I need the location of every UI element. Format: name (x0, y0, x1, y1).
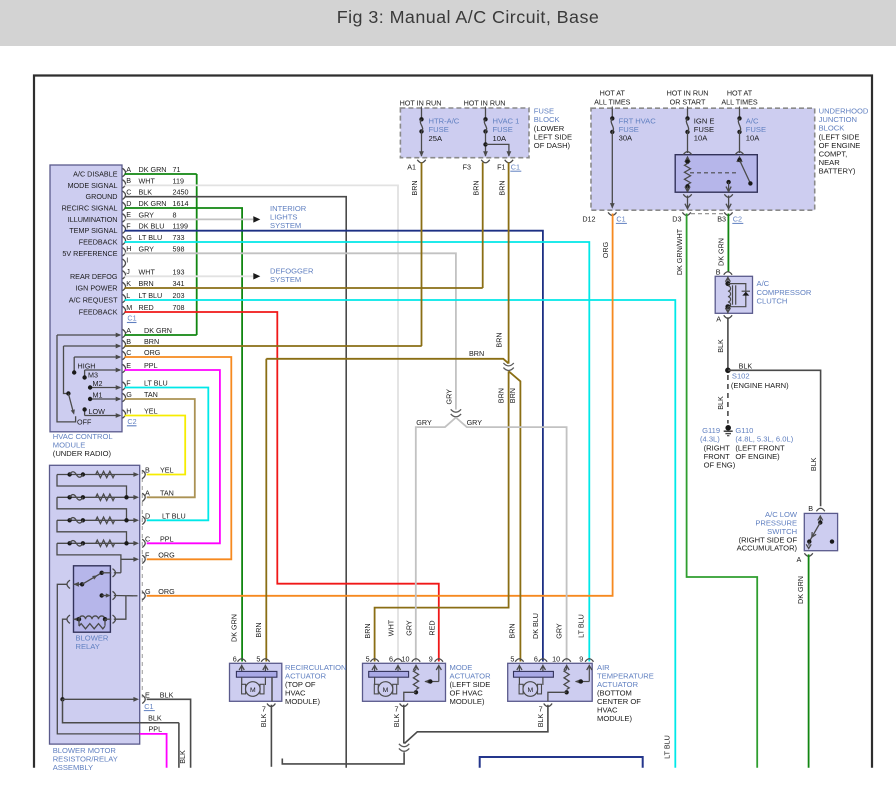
svg-text:1199: 1199 (173, 222, 188, 231)
svg-text:341: 341 (173, 279, 185, 288)
svg-text:BRN: BRN (410, 180, 419, 195)
svg-text:708: 708 (173, 303, 185, 312)
svg-text:119: 119 (173, 176, 184, 185)
svg-text:DK GRN: DK GRN (796, 576, 805, 604)
svg-text:HOT AT: HOT AT (727, 89, 753, 98)
svg-text:193: 193 (173, 267, 185, 276)
svg-text:10A: 10A (746, 134, 760, 143)
svg-text:ASSEMBLY: ASSEMBLY (53, 763, 93, 772)
svg-text:LT BLU: LT BLU (162, 511, 186, 520)
svg-text:GRY: GRY (404, 620, 413, 636)
svg-text:BLK: BLK (716, 339, 725, 353)
svg-text:BRN: BRN (469, 349, 484, 358)
svg-text:DK GRN: DK GRN (139, 199, 167, 208)
svg-text:ALL TIMES: ALL TIMES (721, 98, 758, 107)
svg-text:GRY: GRY (139, 244, 155, 253)
svg-text:71: 71 (173, 165, 181, 174)
svg-text:PPL: PPL (149, 725, 163, 734)
svg-text:MODULE): MODULE) (597, 714, 632, 723)
svg-text:D3: D3 (672, 215, 681, 224)
svg-text:LT BLU: LT BLU (144, 379, 168, 388)
svg-text:BRN: BRN (496, 388, 505, 403)
svg-text:30A: 30A (619, 134, 633, 143)
svg-text:LT BLU: LT BLU (139, 291, 163, 300)
svg-text:MODULE): MODULE) (285, 697, 320, 706)
svg-text:6: 6 (233, 655, 237, 664)
svg-text:LT BLU: LT BLU (577, 614, 586, 638)
svg-text:10A: 10A (493, 134, 507, 143)
svg-text:D: D (126, 199, 131, 208)
svg-text:9: 9 (429, 655, 433, 664)
svg-text:GRY: GRY (555, 623, 564, 639)
svg-text:RECIRC SIGNAL: RECIRC SIGNAL (62, 204, 118, 213)
svg-text:DK GRN: DK GRN (229, 614, 238, 642)
svg-text:DK GRN: DK GRN (144, 326, 172, 335)
svg-text:10: 10 (552, 655, 560, 664)
svg-text:6: 6 (389, 655, 393, 664)
svg-text:SYSTEM: SYSTEM (270, 275, 301, 284)
svg-text:5V REFERENCE: 5V REFERENCE (62, 249, 117, 258)
svg-text:MODULE): MODULE) (450, 697, 485, 706)
svg-text:598: 598 (173, 244, 185, 253)
svg-text:B: B (126, 337, 131, 346)
svg-text:WHT: WHT (386, 619, 395, 636)
svg-text:7: 7 (539, 704, 543, 713)
svg-text:ALL TIMES: ALL TIMES (594, 98, 631, 107)
svg-text:BRN: BRN (471, 180, 480, 195)
svg-text:BRN: BRN (508, 623, 517, 638)
svg-text:GRY: GRY (444, 389, 453, 405)
svg-text:GROUND: GROUND (86, 192, 118, 201)
svg-text:BLK: BLK (809, 457, 818, 471)
svg-text:M: M (126, 303, 132, 312)
svg-text:B: B (716, 267, 721, 276)
svg-text:OR START: OR START (670, 98, 706, 107)
svg-text:BRN: BRN (144, 337, 159, 346)
svg-text:5: 5 (256, 655, 260, 664)
svg-text:BLK: BLK (392, 714, 401, 728)
svg-text:ORG: ORG (601, 241, 610, 258)
svg-text:FEEDBACK: FEEDBACK (79, 308, 118, 317)
svg-text:BLK: BLK (148, 713, 162, 722)
svg-text:A/C REQUEST: A/C REQUEST (69, 296, 118, 305)
svg-text:B: B (808, 504, 813, 513)
svg-text:E: E (126, 210, 131, 219)
svg-text:D: D (145, 511, 150, 520)
svg-text:6: 6 (534, 655, 538, 664)
svg-text:OFF: OFF (77, 417, 92, 426)
svg-text:A: A (145, 488, 150, 497)
svg-text:F: F (126, 222, 131, 231)
svg-text:203: 203 (173, 291, 185, 300)
svg-text:DK BLU: DK BLU (139, 222, 165, 231)
svg-text:I: I (126, 256, 128, 265)
svg-text:A: A (126, 326, 131, 335)
svg-text:DK BLU: DK BLU (531, 613, 540, 639)
svg-text:OF ENG): OF ENG) (704, 460, 736, 469)
svg-text:(4.8L, 5.3L, 6.0L): (4.8L, 5.3L, 6.0L) (735, 435, 793, 444)
svg-text:IGN POWER: IGN POWER (76, 284, 118, 293)
svg-text:GRY: GRY (467, 418, 483, 427)
svg-text:5: 5 (510, 655, 514, 664)
svg-text:REAR DEFOG: REAR DEFOG (70, 272, 118, 281)
svg-text:HIGH: HIGH (78, 361, 96, 370)
svg-text:G: G (145, 587, 151, 596)
svg-text:L: L (126, 291, 130, 300)
svg-text:(4.3L): (4.3L) (700, 435, 720, 444)
svg-text:Fig 3: Manual A/C Circuit, Bas: Fig 3: Manual A/C Circuit, Base (337, 7, 600, 27)
svg-text:A1: A1 (407, 163, 416, 172)
svg-text:BLK: BLK (716, 396, 725, 410)
svg-text:ORG: ORG (158, 550, 175, 559)
svg-text:10A: 10A (694, 134, 708, 143)
svg-text:M1: M1 (93, 390, 103, 399)
svg-text:B: B (126, 176, 131, 185)
svg-text:BATTERY): BATTERY) (819, 167, 856, 176)
svg-text:D12: D12 (582, 215, 595, 224)
svg-text:9: 9 (579, 655, 583, 664)
svg-text:WHT: WHT (139, 267, 156, 276)
svg-text:BRN: BRN (495, 332, 504, 347)
svg-text:RED: RED (427, 620, 436, 635)
svg-text:TEMP SIGNAL: TEMP SIGNAL (69, 226, 117, 235)
svg-text:BLK: BLK (536, 714, 545, 728)
svg-text:OF DASH): OF DASH) (534, 141, 571, 150)
svg-text:RED: RED (139, 303, 154, 312)
svg-text:(UNDER RADIO): (UNDER RADIO) (53, 449, 112, 458)
svg-text:C1: C1 (127, 314, 136, 323)
svg-text:1614: 1614 (173, 199, 189, 208)
svg-text:B: B (145, 466, 150, 475)
svg-text:H: H (126, 406, 131, 415)
svg-text:YEL: YEL (144, 407, 158, 416)
svg-text:BLK: BLK (739, 361, 753, 370)
svg-text:25A: 25A (429, 134, 443, 143)
svg-text:DK GRN: DK GRN (716, 238, 725, 266)
svg-text:8: 8 (173, 210, 177, 219)
svg-text:OF ENGINE): OF ENGINE) (735, 452, 780, 461)
svg-text:HOT IN RUN: HOT IN RUN (464, 98, 506, 107)
svg-text:C1: C1 (511, 163, 520, 172)
svg-text:S102: S102 (732, 372, 750, 381)
svg-text:C2: C2 (127, 417, 136, 426)
svg-text:ILLUMINATION: ILLUMINATION (68, 215, 118, 224)
svg-text:B3: B3 (717, 215, 726, 224)
svg-text:YEL: YEL (160, 466, 174, 475)
svg-text:A/C DISABLE: A/C DISABLE (73, 170, 118, 179)
svg-text:BRN: BRN (497, 180, 506, 195)
svg-text:F3: F3 (463, 163, 471, 172)
svg-text:ORG: ORG (144, 348, 161, 357)
svg-text:BLK: BLK (259, 714, 268, 728)
svg-text:G: G (126, 390, 132, 399)
svg-text:TAN: TAN (144, 390, 158, 399)
svg-text:C1: C1 (616, 215, 625, 224)
svg-text:A: A (716, 315, 721, 324)
svg-text:M: M (250, 687, 256, 694)
svg-text:A: A (797, 555, 802, 564)
svg-text:BRN: BRN (254, 622, 263, 637)
svg-text:C: C (126, 348, 131, 357)
svg-text:HOT IN RUN: HOT IN RUN (667, 89, 709, 98)
svg-text:F: F (126, 378, 131, 387)
svg-text:A: A (126, 165, 131, 174)
svg-text:LT BLU: LT BLU (139, 233, 163, 242)
svg-text:M: M (383, 687, 389, 694)
svg-text:M2: M2 (93, 379, 103, 388)
svg-text:GRY: GRY (139, 210, 155, 219)
svg-text:C: C (126, 188, 131, 197)
svg-text:ACCUMULATOR): ACCUMULATOR) (737, 544, 798, 553)
svg-text:E: E (145, 690, 150, 699)
svg-text:GRY: GRY (416, 418, 432, 427)
svg-text:BRN: BRN (139, 279, 154, 288)
svg-text:F: F (145, 550, 150, 559)
svg-text:MODE SIGNAL: MODE SIGNAL (68, 181, 118, 190)
svg-text:LOW: LOW (89, 407, 106, 416)
svg-text:733: 733 (173, 233, 185, 242)
svg-text:HOT IN RUN: HOT IN RUN (400, 98, 442, 107)
svg-text:BLK: BLK (160, 690, 174, 699)
svg-text:(ENGINE HARN): (ENGINE HARN) (731, 381, 789, 390)
svg-text:C1: C1 (144, 702, 153, 711)
svg-text:HOT AT: HOT AT (600, 89, 626, 98)
svg-text:2450: 2450 (173, 188, 189, 197)
svg-text:ORG: ORG (158, 587, 175, 596)
svg-text:BLK: BLK (139, 188, 153, 197)
svg-text:PPL: PPL (144, 361, 158, 370)
svg-text:LT BLU: LT BLU (663, 735, 672, 759)
svg-text:K: K (126, 279, 131, 288)
svg-text:5: 5 (366, 655, 370, 664)
svg-text:DK GRN/WHT: DK GRN/WHT (675, 228, 684, 275)
svg-text:H: H (126, 244, 131, 253)
svg-text:7: 7 (395, 704, 399, 713)
svg-text:SYSTEM: SYSTEM (270, 221, 301, 230)
svg-text:TAN: TAN (160, 488, 174, 497)
svg-text:PPL: PPL (160, 534, 174, 543)
svg-text:G: G (126, 233, 132, 242)
svg-text:E: E (126, 361, 131, 370)
svg-text:F1: F1 (497, 163, 505, 172)
svg-text:BRN: BRN (508, 388, 517, 403)
svg-text:BRN: BRN (363, 623, 372, 638)
svg-text:C2: C2 (733, 215, 742, 224)
svg-text:10: 10 (402, 655, 410, 664)
svg-text:7: 7 (262, 704, 266, 713)
svg-text:RELAY: RELAY (76, 642, 100, 651)
svg-text:CLUTCH: CLUTCH (757, 296, 788, 305)
svg-text:M: M (527, 687, 533, 694)
svg-text:WHT: WHT (139, 176, 156, 185)
svg-text:DK GRN: DK GRN (139, 165, 167, 174)
svg-text:J: J (126, 267, 130, 276)
svg-text:FEEDBACK: FEEDBACK (79, 238, 118, 247)
svg-text:C: C (145, 534, 150, 543)
